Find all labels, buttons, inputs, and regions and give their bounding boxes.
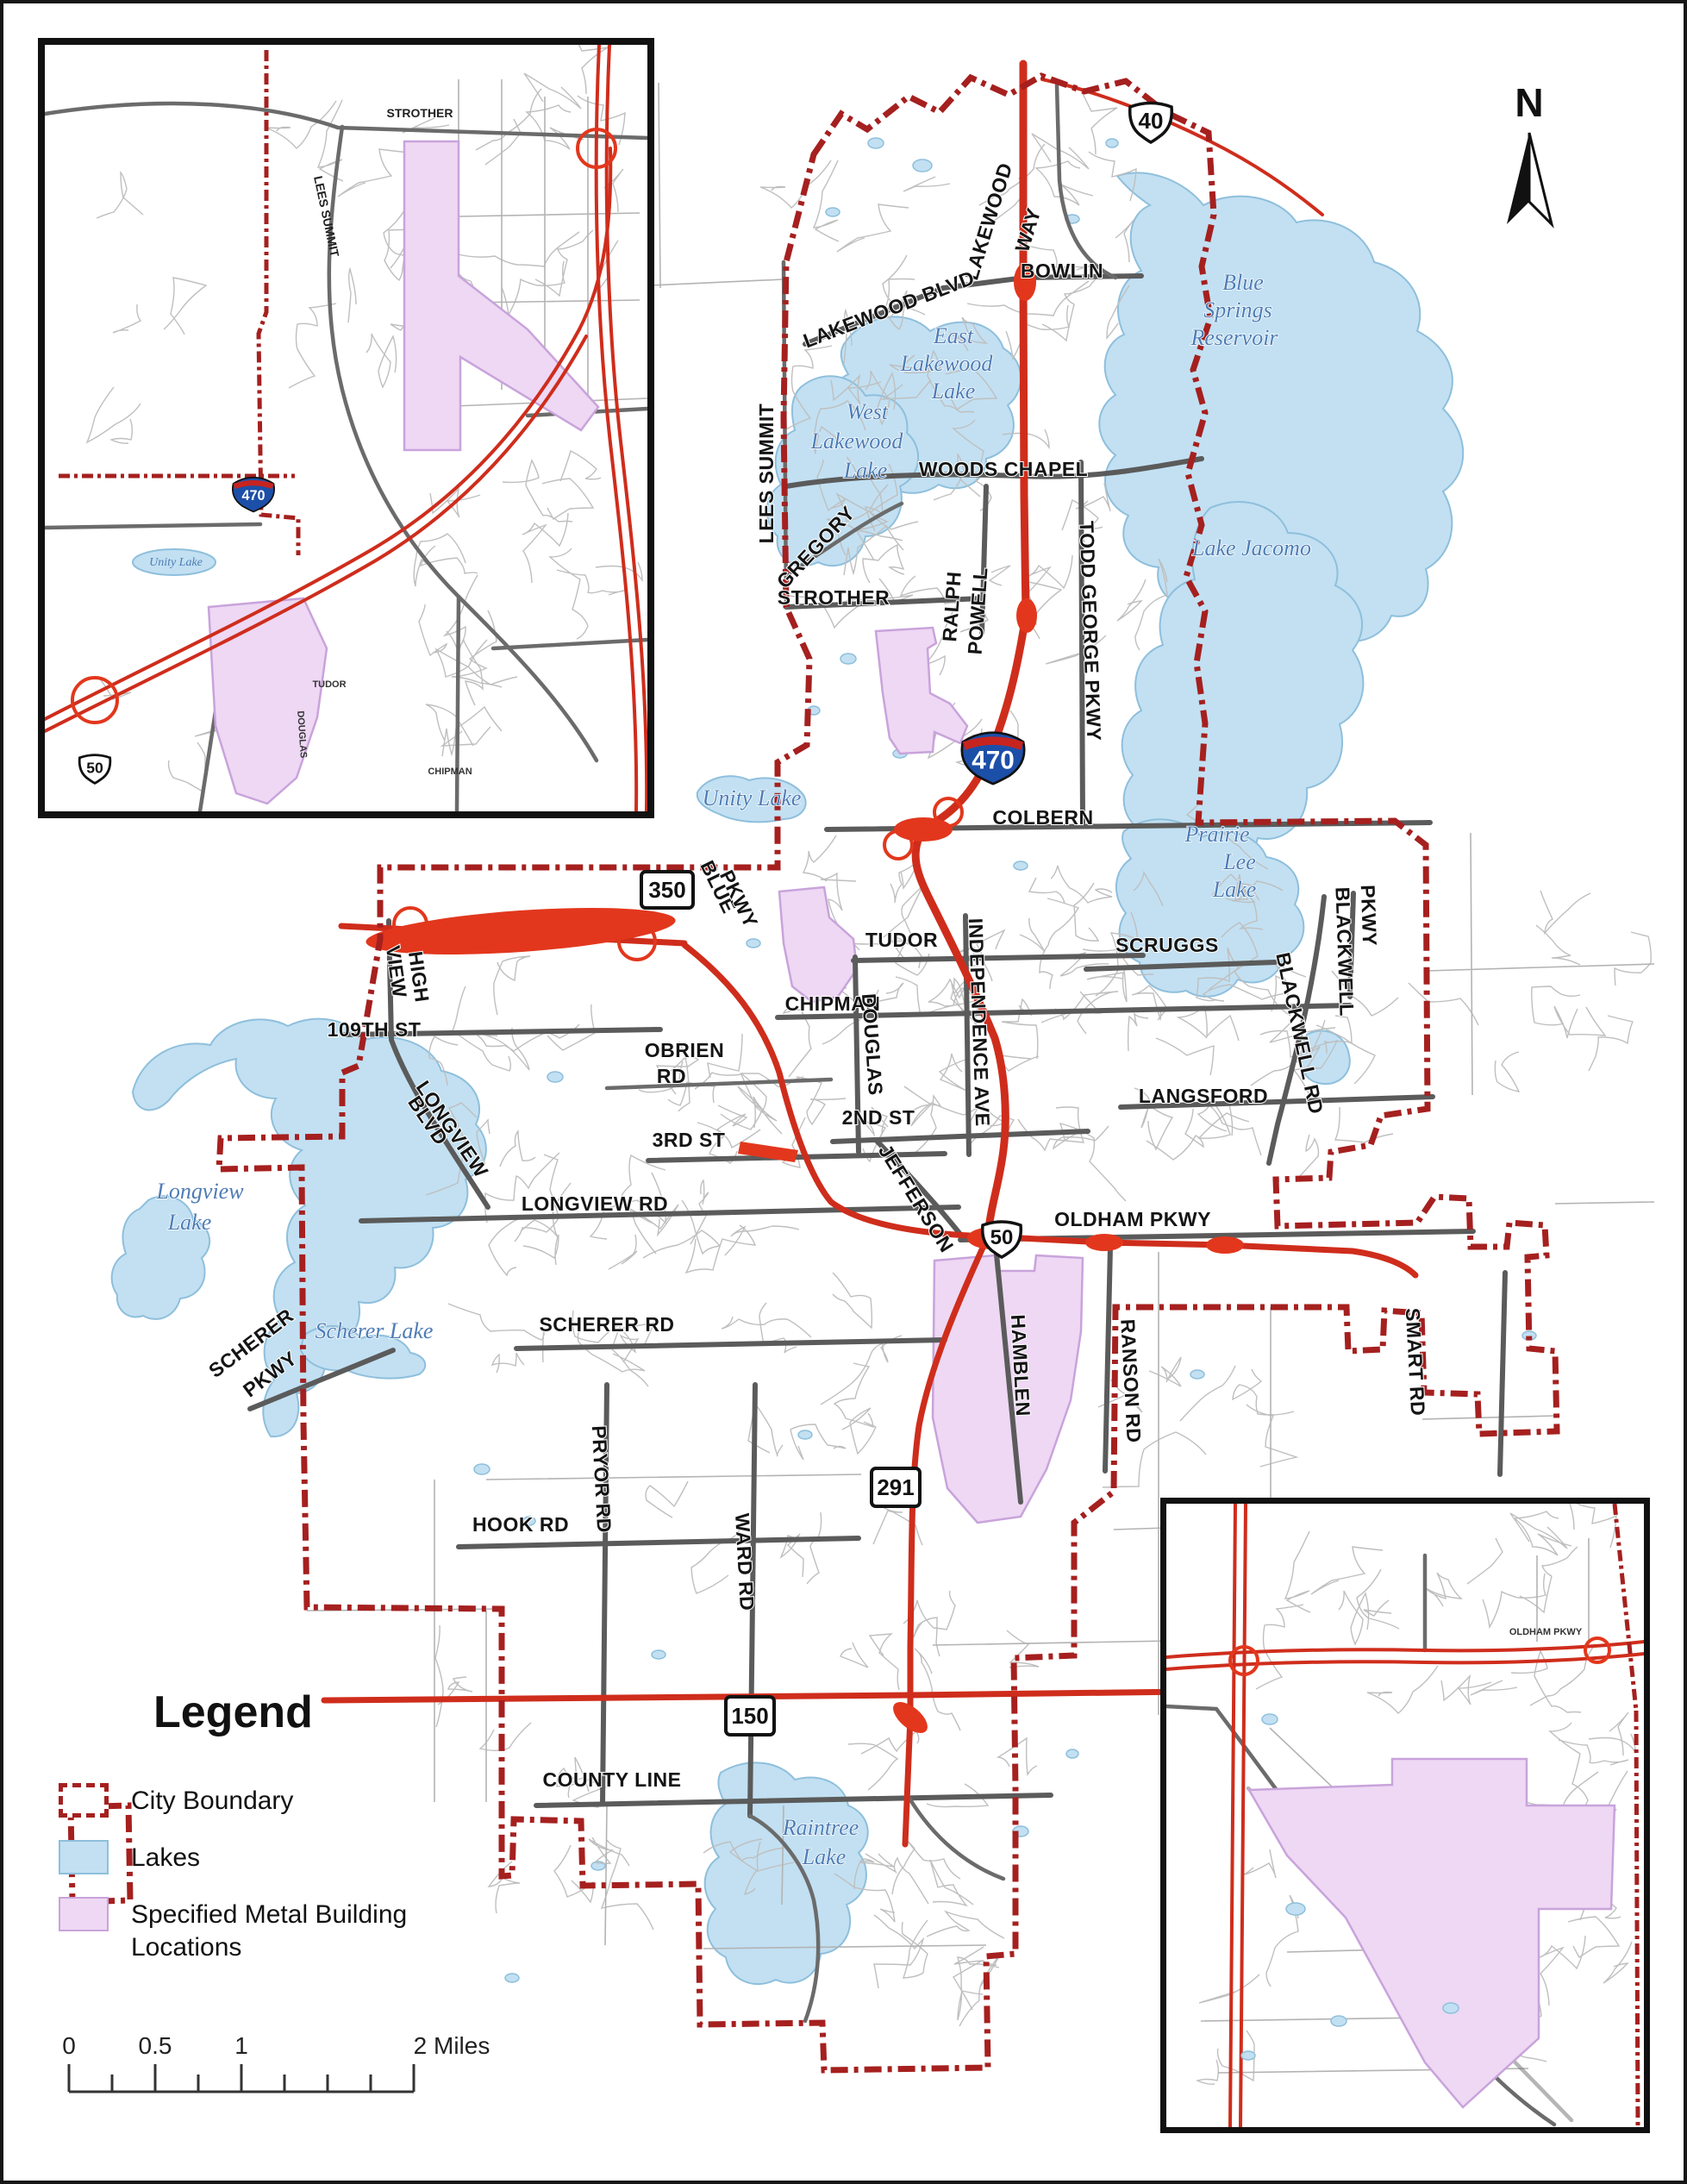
i470-shield: 470 <box>962 733 1024 784</box>
road-label-douglas: DOUGLAS <box>858 992 887 1096</box>
minor-road <box>1020 918 1045 952</box>
map-page: 40 470 350 50 291 150 <box>0 0 1687 2184</box>
road-label-woods-chapel: WOODS CHAPEL <box>919 458 1088 480</box>
inset-label-lees-summit: LEES SUMMIT <box>311 175 342 259</box>
minor-road <box>1128 1014 1148 1051</box>
minor-road <box>930 1860 973 1906</box>
minor-road <box>840 1643 868 1668</box>
minor-road <box>169 742 205 792</box>
minor-road <box>1103 1432 1206 1487</box>
minor-road <box>1197 2060 1218 2084</box>
city-boundary-swatch <box>59 1783 109 1818</box>
road-label-blackwell-pkwy: PKWY <box>1357 885 1381 947</box>
minor-road <box>1199 1102 1249 1138</box>
minor-road <box>1199 1974 1259 2003</box>
minor-road <box>1178 1006 1239 1041</box>
minor-road <box>1285 1531 1310 1612</box>
minor-road <box>97 172 143 218</box>
road-label-hook: HOOK RD <box>472 1513 569 1536</box>
minor-road <box>1367 1666 1438 1713</box>
minor-road <box>1603 1942 1632 1983</box>
lake-label: Lake <box>1212 877 1257 902</box>
north-label: N <box>1488 79 1571 126</box>
minor-road <box>1007 1630 1039 1668</box>
minor-road <box>500 1131 535 1167</box>
minor-road <box>1467 1538 1503 1584</box>
minor-road <box>1540 891 1590 933</box>
minor-road <box>927 1912 1004 1938</box>
minor-road <box>1036 161 1093 205</box>
minor-road <box>686 1225 755 1273</box>
minor-road <box>646 1481 688 1518</box>
inset-label-unity-lake: Unity Lake <box>149 556 203 569</box>
minor-road <box>366 334 397 387</box>
minor-road <box>348 269 356 322</box>
site-blue-pkwy <box>779 887 857 1002</box>
road-label-powell: POWELL <box>964 566 992 655</box>
minor-road <box>503 460 572 522</box>
minor-road <box>1589 1016 1633 1071</box>
minor-road <box>990 566 1010 585</box>
minor-road <box>1425 1573 1461 1606</box>
minor-road <box>1040 898 1078 989</box>
minor-road <box>1550 1723 1588 1813</box>
road-label-2nd: 2ND ST <box>842 1106 915 1129</box>
road-label-tudor: TUDOR <box>865 929 938 951</box>
lake-label: Lake Jacomo <box>1191 535 1311 560</box>
minor-road <box>1300 1135 1319 1176</box>
minor-road <box>821 1336 902 1405</box>
minor-road <box>1002 999 1038 1059</box>
road-label-county-line: COUNTY LINE <box>543 1768 682 1791</box>
minor-road <box>1156 1038 1214 1075</box>
legend-item-lakes: Lakes <box>59 1840 455 1874</box>
lake-label: Lakewood <box>900 351 994 376</box>
inset-map-northwest: 470 50 STROTHER LEES SUMMIT TUDOR CHIPMA… <box>38 38 654 818</box>
road-label-oldham: OLDHAM PKWY <box>1054 1208 1211 1230</box>
minor-road <box>1247 1405 1296 1467</box>
minor-road <box>1540 1936 1585 2006</box>
lake-label: Unity Lake <box>703 785 802 810</box>
road-label-smart: SMART RD <box>1402 1307 1430 1417</box>
minor-road <box>1409 983 1478 1025</box>
minor-road <box>1117 579 1146 621</box>
scale-tick-1: 1 <box>234 2032 248 2059</box>
legend-item-metal-buildings: Specified Metal Building Locations <box>59 1897 455 1963</box>
mo291-label: 291 <box>877 1474 914 1500</box>
minor-road <box>421 546 478 573</box>
road-label-scherer-rd: SCHERER RD <box>539 1313 674 1336</box>
minor-road <box>560 451 601 481</box>
lake-label: Longview <box>155 1179 244 1204</box>
inset-se-boundary <box>1615 1504 1638 2127</box>
road-label-way: WAY <box>1010 205 1045 254</box>
minor-road <box>547 1004 595 1050</box>
minor-road <box>1483 1574 1546 1627</box>
raintree-lake <box>705 1762 868 1984</box>
minor-road <box>1615 932 1651 986</box>
minor-road <box>1074 883 1098 941</box>
road-label-blackwell: BLACKWELL <box>1331 886 1358 1017</box>
minor-road <box>1471 1680 1517 1695</box>
lake-label: Scherer Lake <box>316 1318 434 1343</box>
minor-road <box>865 1854 928 1904</box>
minor-road <box>442 707 502 756</box>
minor-road <box>1060 1123 1126 1201</box>
minor-road <box>609 1235 637 1269</box>
inset-map-southeast: OLDHAM PKWY <box>1160 1498 1650 2133</box>
mo350-label: 350 <box>648 877 685 903</box>
minor-road <box>554 1845 593 1902</box>
lakes-swatch <box>59 1840 109 1874</box>
lake-label: Reservoir <box>1190 325 1278 350</box>
minor-road <box>1339 1591 1369 1644</box>
minor-road <box>111 419 132 443</box>
road-label-longview-rd: LONGVIEW RD <box>522 1192 668 1215</box>
minor-road <box>1536 925 1580 965</box>
minor-road <box>473 1024 579 1051</box>
minor-road <box>550 548 588 639</box>
minor-road <box>572 45 608 94</box>
minor-road <box>1609 1712 1628 1755</box>
legend: Legend City Boundary Lakes Specified Met… <box>59 1686 455 1986</box>
road-label-ranson: RANSON RD <box>1116 1318 1145 1443</box>
road-label-strother: STROTHER <box>778 586 890 609</box>
minor-road <box>494 956 530 1015</box>
minor-road <box>1149 1357 1181 1386</box>
minor-road <box>476 89 541 150</box>
lake-label: Lakewood <box>810 429 904 454</box>
minor-road <box>1147 1109 1203 1160</box>
minor-road <box>790 1424 846 1460</box>
road-label-ward: WARD RD <box>731 1512 759 1611</box>
minor-road <box>903 177 950 191</box>
minor-road <box>837 204 909 252</box>
road-label-scruggs: SCRUGGS <box>1115 934 1219 956</box>
minor-road <box>1018 1107 1084 1150</box>
minor-road <box>1006 305 1069 359</box>
minor-road <box>164 278 206 335</box>
lake-label: Raintree <box>782 1815 859 1840</box>
us40-label: 40 <box>1139 108 1164 134</box>
mo350-shield: 350 <box>641 872 693 908</box>
minor-road <box>1520 1547 1578 1612</box>
minor-road <box>1051 866 1112 903</box>
lake-label: Lee <box>1222 849 1256 874</box>
inset-i470-label: 470 <box>241 488 265 504</box>
minor-road <box>448 1304 544 1362</box>
road-label-langsford: LANGSFORD <box>1139 1085 1268 1107</box>
minor-road <box>489 1217 525 1275</box>
lake-label: Springs <box>1203 297 1271 322</box>
minor-road <box>113 304 141 333</box>
road-label-109th: 109TH ST <box>328 1018 422 1041</box>
inset-label-oldham: OLDHAM PKWY <box>1509 1627 1583 1637</box>
north-arrow-icon <box>1488 128 1571 231</box>
site-strother <box>876 628 967 754</box>
road-label-pryor: PRYOR RD <box>588 1425 615 1534</box>
lake-label: West <box>847 399 889 424</box>
minor-road <box>1180 1366 1235 1421</box>
minor-road <box>842 1408 876 1454</box>
minor-road <box>542 479 593 519</box>
minor-road <box>453 986 510 1071</box>
lake-label: Lake <box>931 379 976 404</box>
minor-road <box>1233 1369 1294 1415</box>
road-label-3rd: 3RD ST <box>653 1129 726 1151</box>
inset-label-chipman: CHIPMAN <box>428 767 472 777</box>
road-label-lakewood: LAKEWOOD <box>959 160 1016 283</box>
us40-shield: 40 <box>1130 103 1172 143</box>
minor-road <box>807 1512 822 1584</box>
inset-nw-highways <box>45 45 647 811</box>
minor-road <box>814 160 839 241</box>
minor-road <box>874 1915 923 1988</box>
lake-label: Lake <box>843 458 888 483</box>
minor-road <box>522 513 568 583</box>
minor-road <box>870 1634 899 1690</box>
minor-road <box>834 1363 873 1427</box>
legend-item-city-boundary: City Boundary <box>59 1783 455 1818</box>
minor-road <box>1559 1740 1628 1765</box>
legend-label: Specified Metal Building Locations <box>131 1897 416 1963</box>
us50-label: 50 <box>990 1226 1014 1249</box>
minor-road <box>721 1086 782 1134</box>
minor-road <box>1554 1006 1605 1038</box>
scale-tick-2miles: 2 Miles <box>414 2032 490 2059</box>
minor-road <box>502 261 565 315</box>
road-label-bowlin: BOWLIN <box>1021 260 1103 282</box>
minor-road <box>523 1235 559 1265</box>
minor-road <box>1495 1052 1519 1092</box>
road-label-obrien-rd: RD <box>657 1065 686 1087</box>
inset-label-strother: STROTHER <box>387 106 453 120</box>
minor-road <box>725 1226 799 1255</box>
minor-road <box>1515 1511 1571 1555</box>
lake-label: Prairie <box>1184 822 1249 847</box>
lake-label: East <box>933 323 974 348</box>
lake-label: Blue <box>1222 270 1264 295</box>
mo291-shield: 291 <box>872 1468 920 1506</box>
lake-label: Lake <box>167 1210 212 1235</box>
minor-road <box>1198 1105 1261 1155</box>
legend-label: Lakes <box>131 1840 200 1874</box>
mo150-shield: 150 <box>726 1697 774 1735</box>
minor-road <box>1029 878 1065 904</box>
road-label-lees-summit: LEES SUMMIT <box>755 404 778 544</box>
minor-road <box>492 1353 524 1373</box>
minor-road <box>1241 1849 1276 1878</box>
road-label-obrien: OBRIEN <box>645 1039 724 1061</box>
minor-road <box>1311 1547 1383 1594</box>
inset-nw-roads <box>45 103 647 811</box>
road-label-jefferson: JEFFERSON <box>874 1140 959 1256</box>
i470-label: 470 <box>972 747 1015 775</box>
minor-road <box>760 160 831 208</box>
inset-us50-label: 50 <box>86 759 103 776</box>
road-label-colbern: COLBERN <box>992 806 1093 829</box>
legend-title: Legend <box>153 1686 455 1738</box>
minor-road <box>1589 1734 1635 1752</box>
scale-tick-05: 0.5 <box>139 2032 172 2059</box>
minor-road <box>1042 275 1100 341</box>
metal-building-swatch <box>59 1897 109 1931</box>
minor-road <box>442 727 490 746</box>
lake-label: Lake <box>802 1844 847 1869</box>
minor-road <box>480 1723 531 1750</box>
minor-road <box>419 604 447 655</box>
minor-road <box>527 105 584 149</box>
minor-road <box>722 1317 811 1337</box>
minor-road <box>1256 1605 1303 1689</box>
minor-road <box>848 1743 897 1790</box>
mo150-label: 150 <box>731 1703 768 1729</box>
inset-nw-minor <box>87 45 642 792</box>
minor-road <box>1041 992 1100 1023</box>
inset-se-site <box>1249 1759 1615 2107</box>
minor-road <box>940 1054 969 1091</box>
us50-shield: 50 <box>983 1222 1022 1257</box>
minor-road <box>833 1273 872 1328</box>
scale-tick-0: 0 <box>62 2032 76 2059</box>
inset-label-tudor: TUDOR <box>312 679 346 690</box>
minor-road <box>803 835 836 881</box>
minor-road <box>797 1077 846 1124</box>
legend-label: City Boundary <box>131 1783 293 1818</box>
north-arrow: N <box>1488 79 1571 231</box>
scale-bar: 0 0.5 1 2 Miles <box>53 2019 536 2114</box>
minor-road <box>338 149 409 197</box>
minor-road <box>426 704 473 746</box>
minor-road <box>1568 1917 1619 1957</box>
minor-road <box>557 570 627 595</box>
minor-road <box>1569 1504 1616 1548</box>
